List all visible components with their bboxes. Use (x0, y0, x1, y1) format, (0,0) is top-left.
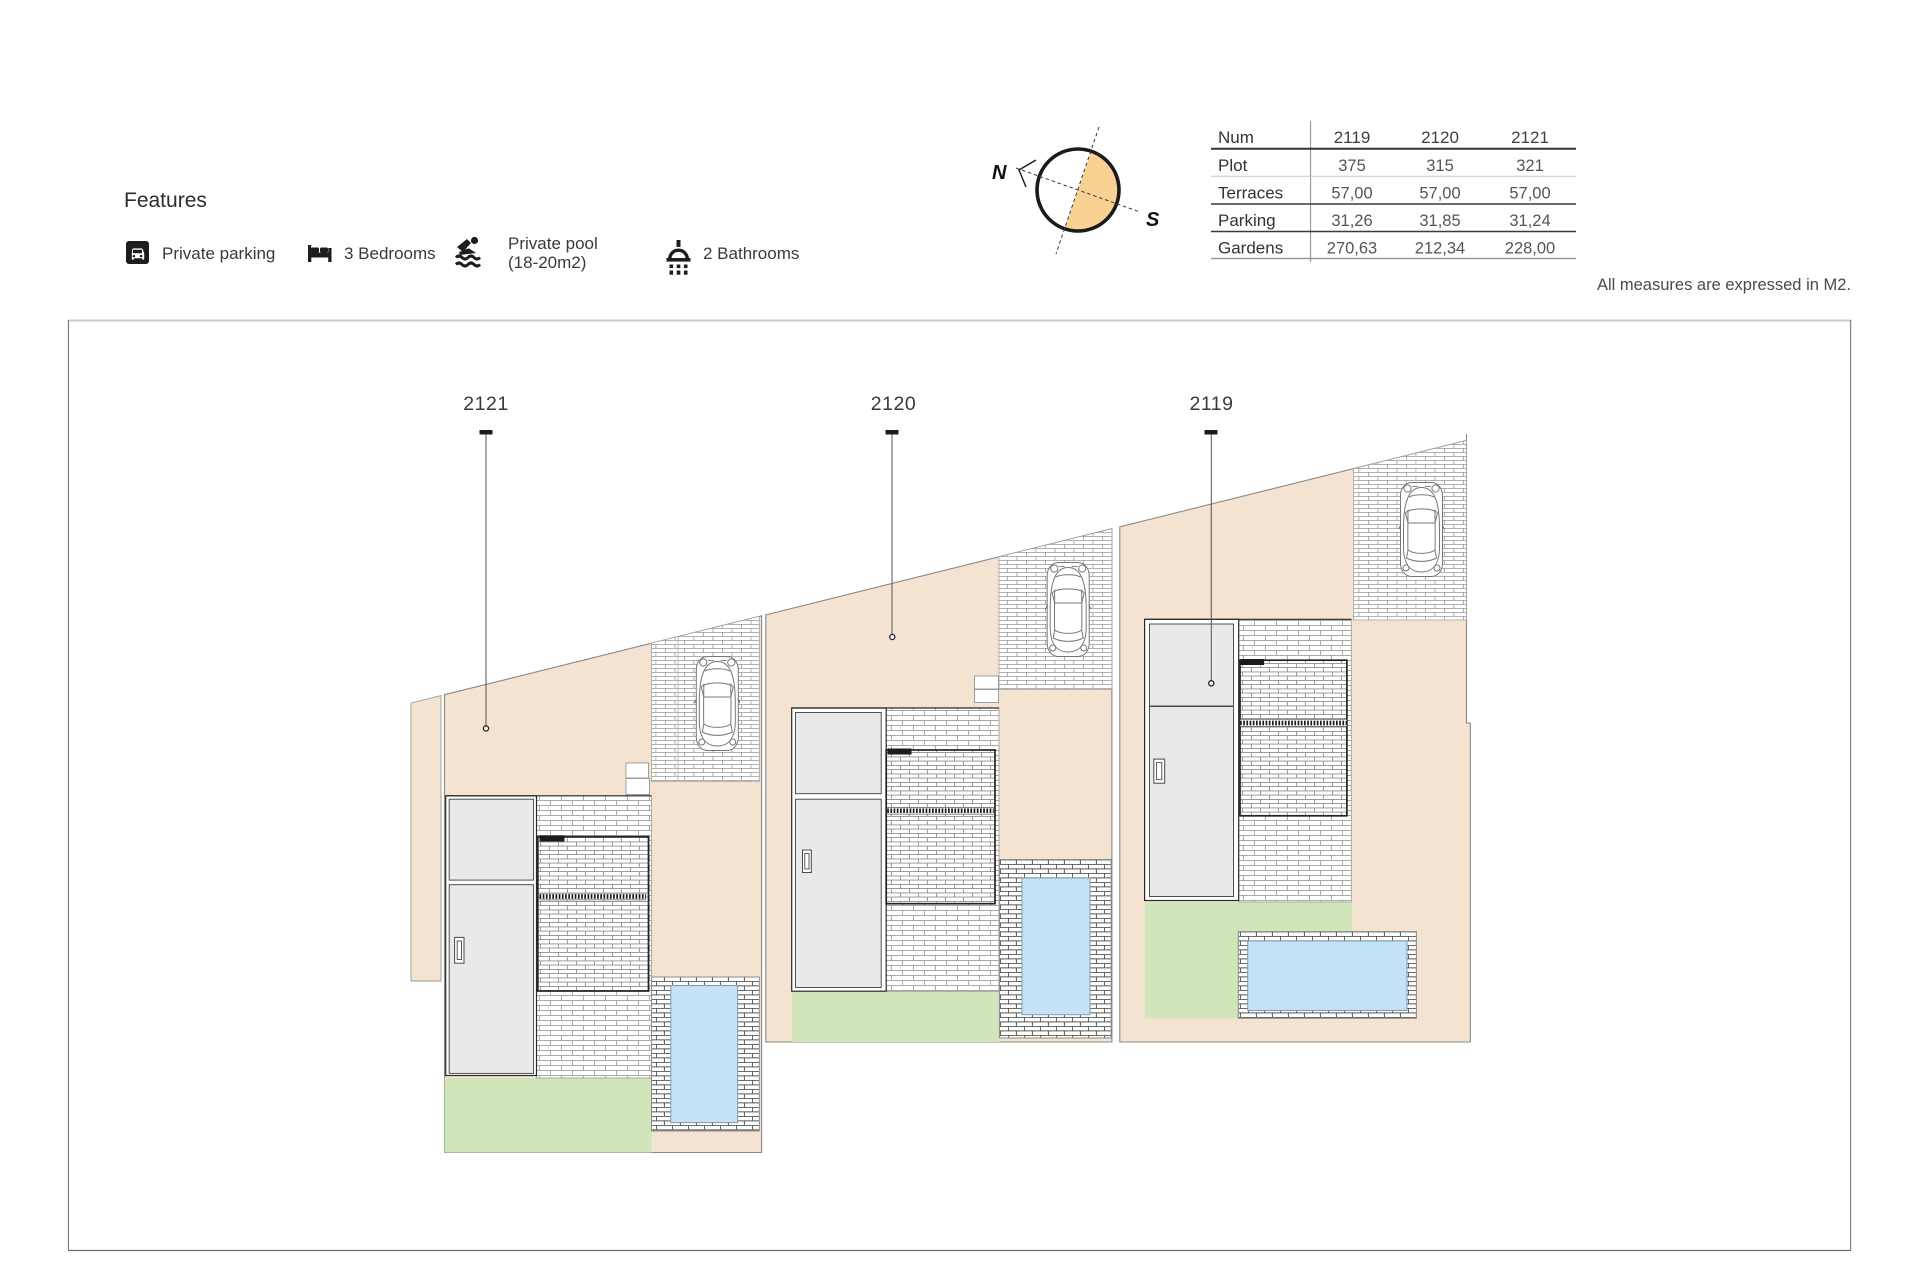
svg-text:Private pool: Private pool (508, 234, 598, 253)
svg-text:Terraces: Terraces (1218, 184, 1283, 203)
svg-text:3 Bedrooms: 3 Bedrooms (344, 244, 436, 263)
svg-text:31,24: 31,24 (1509, 212, 1550, 230)
svg-text:2120: 2120 (871, 393, 916, 415)
svg-text:31,26: 31,26 (1331, 212, 1372, 230)
svg-text:(18-20m2): (18-20m2) (508, 253, 586, 272)
svg-text:Parking: Parking (1218, 211, 1276, 230)
svg-text:375: 375 (1338, 157, 1366, 175)
svg-text:31,85: 31,85 (1419, 212, 1460, 230)
svg-text:2 Bathrooms: 2 Bathrooms (703, 244, 799, 263)
svg-text:2119: 2119 (1190, 393, 1234, 415)
svg-text:All measures are expressed in: All measures are expressed in M2. (1597, 276, 1851, 294)
svg-text:228,00: 228,00 (1505, 240, 1555, 258)
svg-text:57,00: 57,00 (1419, 185, 1460, 203)
svg-text:Plot: Plot (1218, 156, 1248, 175)
svg-text:57,00: 57,00 (1331, 185, 1372, 203)
svg-text:315: 315 (1426, 157, 1454, 175)
svg-text:2121: 2121 (1511, 128, 1549, 147)
svg-text:57,00: 57,00 (1509, 185, 1550, 203)
svg-text:Num: Num (1218, 128, 1254, 147)
svg-text:Features: Features (124, 189, 207, 212)
svg-text:N: N (992, 162, 1007, 184)
svg-text:Gardens: Gardens (1218, 239, 1283, 258)
svg-text:270,63: 270,63 (1327, 240, 1377, 258)
svg-text:S: S (1146, 209, 1160, 231)
svg-text:2120: 2120 (1421, 128, 1459, 147)
svg-text:Private parking: Private parking (162, 244, 275, 263)
svg-text:2121: 2121 (463, 393, 508, 415)
svg-text:212,34: 212,34 (1415, 240, 1465, 258)
svg-text:321: 321 (1516, 157, 1544, 175)
svg-text:2119: 2119 (1334, 128, 1371, 147)
